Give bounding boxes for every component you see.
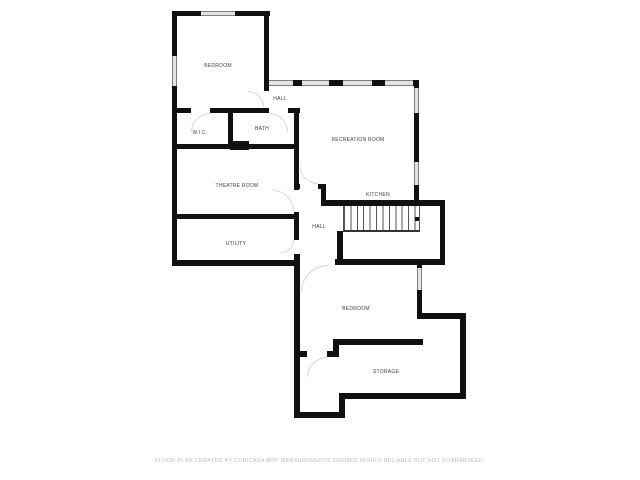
room-label-bedroom-lower: BEDROOM	[342, 306, 370, 312]
room-labels-layer: BEDROOMHALLW.I.C.BATHRECREATION ROOMTHEA…	[0, 0, 640, 480]
room-label-theatre-room: THEATRE ROOM	[216, 183, 259, 189]
room-label-bedroom-upper: BEDROOM	[204, 63, 232, 69]
floor-plan: BEDROOMHALLW.I.C.BATHRECREATION ROOMTHEA…	[0, 0, 640, 480]
room-label-hall-lower: HALL	[312, 224, 326, 230]
room-label-utility: UTILITY	[226, 241, 246, 247]
room-label-wic: W.I.C.	[192, 130, 207, 136]
room-label-kitchen: KITCHEN	[366, 192, 390, 198]
room-label-hall-upper: HALL	[273, 96, 287, 102]
room-label-bath: BATH	[255, 126, 269, 132]
room-label-storage: STORAGE	[373, 369, 399, 375]
disclaimer-text: FLOOR PLAN CREATED BY CUBICASA APP. MEAS…	[0, 458, 640, 464]
room-label-recreation-room: RECREATION ROOM	[331, 137, 384, 143]
